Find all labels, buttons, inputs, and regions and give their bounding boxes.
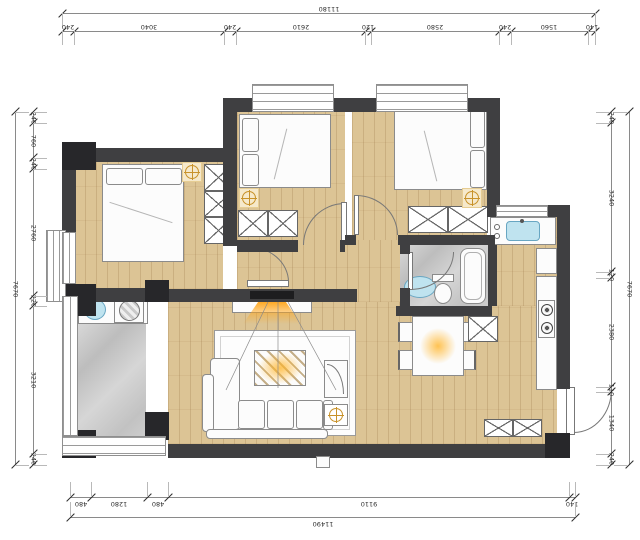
- wall: [487, 205, 496, 217]
- dim-segment: 1560: [511, 22, 588, 42]
- door-leaf: [247, 280, 289, 287]
- burner-icon: [541, 304, 553, 316]
- dim-segment: 1340: [602, 392, 620, 454]
- dim-segment: 2580: [371, 22, 499, 42]
- dimension-label: 2610: [293, 23, 310, 30]
- door-leaf: [408, 252, 413, 290]
- dimension-top-total: 11180: [62, 4, 595, 24]
- dimension-left-total: 7670: [6, 112, 24, 465]
- wall: [345, 235, 356, 245]
- wardrobe-cross-icon: [484, 419, 513, 437]
- pier: [316, 456, 330, 468]
- sofa-cushion: [238, 400, 265, 429]
- wall: [557, 217, 570, 389]
- dimension-label: 2380: [608, 324, 615, 341]
- chair: [398, 350, 413, 370]
- wall: [237, 98, 252, 112]
- wardrobe-cross-icon: [513, 419, 542, 437]
- dim-segment: 7670: [620, 112, 638, 465]
- ceiling-light-icon: [185, 165, 199, 179]
- gas-hob-icon: [538, 300, 555, 338]
- dimension-label: 1560: [541, 23, 558, 30]
- knob-dot: [494, 224, 500, 230]
- dimension-label: 1340: [608, 415, 615, 432]
- dimension-label: 3210: [30, 372, 37, 389]
- dining-cabinet: [468, 316, 498, 342]
- wall: [237, 240, 298, 252]
- wall: [223, 98, 237, 246]
- dim-segment: 11180: [62, 4, 595, 24]
- wardrobe-cross-icon: [268, 210, 298, 237]
- dimension-label: 11180: [318, 5, 339, 12]
- dimension-label: 3040: [141, 23, 158, 30]
- sofa-base: [206, 429, 328, 439]
- dimension-right-total: 7670: [620, 112, 638, 465]
- dim-segment: 480: [70, 488, 91, 508]
- dimension-bottom-total: 11490: [70, 508, 575, 528]
- dim-segment: 7670: [6, 112, 24, 465]
- wardrobe-cross-icon: [238, 210, 268, 237]
- ceiling-light-icon: [329, 408, 343, 422]
- fridge: [536, 248, 557, 274]
- dim-segment: 3040: [74, 22, 224, 42]
- bathtub-inner: [464, 252, 482, 300]
- ceiling-light-icon: [242, 191, 256, 205]
- window-icon: [62, 232, 76, 284]
- sofa-cushion: [296, 400, 323, 429]
- kitchen-window-icon: [496, 205, 548, 217]
- dim-segment: 1280: [91, 488, 147, 508]
- pillow: [242, 154, 259, 186]
- dimension-label: 1280: [111, 500, 128, 507]
- dim-segment: 2380: [602, 278, 620, 388]
- floor-plan: 11180 2403040240261012025802401560140 48…: [0, 0, 640, 540]
- sofa-cushion: [267, 400, 294, 429]
- dimension-label: 240: [224, 23, 236, 30]
- dim-segment: 2760: [24, 169, 42, 296]
- dim-segment: 3240: [602, 123, 620, 272]
- wardrobe-right: [408, 206, 488, 233]
- wall-corner: [62, 142, 96, 170]
- dimension-label: 2760: [30, 224, 37, 241]
- wall: [487, 112, 500, 205]
- burner-icon: [541, 322, 553, 334]
- washer-drum: [119, 300, 140, 321]
- front-door-leaf: [566, 387, 575, 435]
- kitchen-sink-icon: [506, 221, 540, 241]
- dim-segment: 480: [147, 488, 168, 508]
- dimension-label: 7670: [626, 280, 633, 297]
- dimension-label: 760: [30, 134, 37, 146]
- pillow: [106, 168, 143, 185]
- wall: [168, 444, 557, 458]
- wall: [548, 205, 570, 217]
- wardrobe-middle: [238, 210, 298, 237]
- dimension-left-segments: 24076024027602203210240: [24, 112, 42, 465]
- toilet-icon: [434, 283, 452, 304]
- wall-corner: [545, 433, 570, 458]
- dim-segment: 2610: [236, 22, 365, 42]
- wall: [396, 306, 492, 316]
- dimension-label: 240: [62, 23, 74, 30]
- dimension-label: 3240: [608, 189, 615, 206]
- wall: [468, 98, 500, 112]
- wall: [400, 245, 410, 254]
- dimension-label: 240: [499, 23, 511, 30]
- dimension-right-segments: 240324012023801101340240: [602, 112, 620, 465]
- ceiling-light-icon: [465, 191, 479, 205]
- wardrobe-cross-icon: [448, 206, 488, 233]
- dimension-label: 480: [74, 500, 86, 507]
- pillow: [242, 118, 259, 152]
- wardrobe-cross-icon: [468, 316, 498, 342]
- window-icon: [252, 84, 334, 112]
- door-leaf: [354, 195, 359, 235]
- balcony-window-icon: [62, 296, 78, 436]
- pillow: [470, 110, 485, 148]
- window-icon: [376, 84, 468, 112]
- dining-table-glow: [420, 328, 456, 364]
- dimension-bottom-segments: 48012804809110140: [70, 488, 575, 508]
- dimension-label: 7670: [12, 280, 19, 297]
- tv-light-rays: [200, 300, 360, 395]
- balcony-window-icon: [62, 436, 166, 456]
- wall: [398, 235, 495, 245]
- balcony-floor: [78, 322, 146, 440]
- wall-corner: [145, 280, 169, 302]
- faucet-dot: [520, 219, 524, 223]
- wall: [334, 98, 376, 112]
- wall: [400, 288, 410, 306]
- wardrobe-cross-icon: [408, 206, 448, 233]
- bathtub-icon: [460, 248, 486, 304]
- chair: [398, 322, 413, 342]
- dimension-label: 9110: [360, 500, 377, 507]
- dimension-top-segments: 2403040240261012025802401560140: [62, 22, 595, 42]
- dim-segment: 3210: [24, 306, 42, 454]
- shoe-cabinet: [484, 419, 542, 437]
- dimension-label: 2580: [427, 23, 444, 30]
- dim-segment: 760: [24, 123, 42, 158]
- pillow: [470, 150, 485, 188]
- dimension-label: 11490: [312, 520, 333, 527]
- dim-segment: 11490: [70, 508, 575, 528]
- tv-icon: [250, 291, 294, 299]
- wall: [488, 245, 497, 306]
- dimension-label: 480: [152, 500, 164, 507]
- dim-segment: 9110: [168, 488, 568, 508]
- pillow: [145, 168, 182, 185]
